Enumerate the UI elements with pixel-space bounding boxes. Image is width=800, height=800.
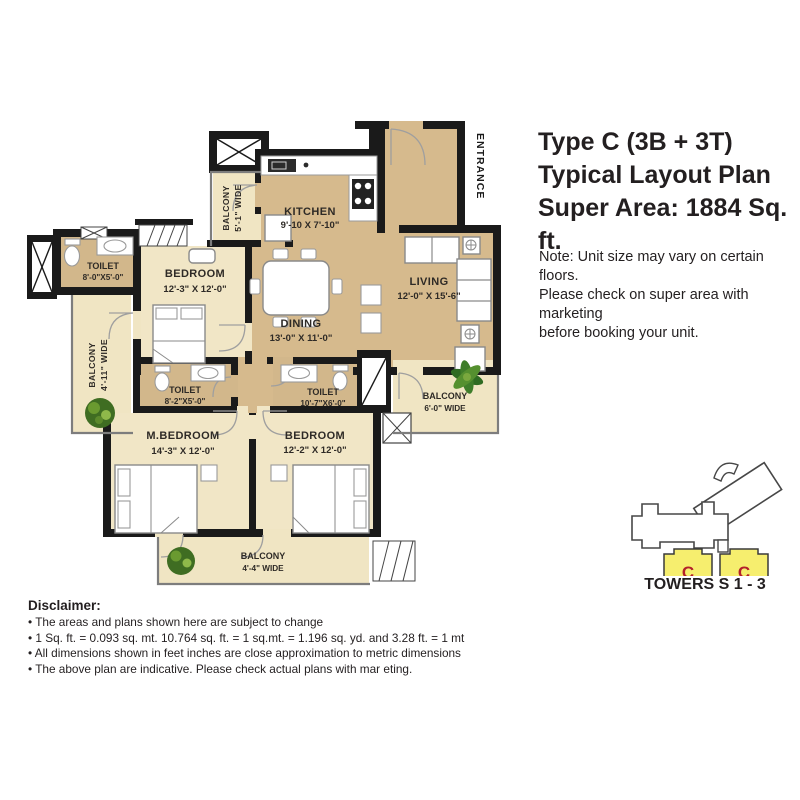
floor-plan: KITCHEN 9'-10 X 7'-10" LIVING 12'-0" X 1… <box>5 115 550 600</box>
balcony-left-label: BALCONY <box>87 342 97 387</box>
tower-outline-hook <box>714 463 738 481</box>
m-bedroom-label: M.BEDROOM <box>146 430 219 442</box>
disclaimer-bullet: • The above plan are indicative. Please … <box>28 662 498 678</box>
living-label: LIVING <box>409 276 448 288</box>
bedroom-bottom-label: BEDROOM <box>285 430 345 442</box>
dining-dims: 13'-0" X 11'-0" <box>270 333 333 344</box>
toilet-right-dims: 10'-7"X6'-0" <box>300 399 345 408</box>
bedroom-top-dims: 12'-3" X 12'-0" <box>163 284 226 295</box>
plant-icon <box>85 398 115 428</box>
sofa-three-seat <box>457 259 491 321</box>
toilet-mid-label: TOILET <box>169 385 201 395</box>
tower-unit-label: C <box>682 563 694 576</box>
disclaimer-bullet: • The areas and plans shown here are sub… <box>28 615 498 631</box>
plant-icon <box>167 547 195 575</box>
plan-title: Type C (3B + 3T) Typical Layout Plan Sup… <box>538 126 798 258</box>
balcony-bottom-dims: 4'-4" WIDE <box>242 564 284 573</box>
balcony-right-dims: 6'-0" WIDE <box>424 404 466 413</box>
balcony-kitchen-label: BALCONY <box>221 185 231 230</box>
tower-location-inset: C C <box>618 448 790 576</box>
bedside-table <box>201 465 217 481</box>
tower-stem <box>718 540 728 552</box>
bedroom-bottom-dims: 12'-2" X 12'-0" <box>283 445 346 456</box>
living-dims: 12'-0" X 15'-6" <box>397 291 460 302</box>
kitchen-dims: 9'-10 X 7'-10" <box>281 220 340 231</box>
balcony-right-label: BALCONY <box>423 391 468 401</box>
balcony-kitchen-dims: 5'-1" WIDE <box>233 184 243 231</box>
disclaimer: Disclaimer: • The areas and plans shown … <box>28 598 498 677</box>
bedside-table <box>271 465 287 481</box>
tower-caption: TOWERS S 1 - 3 <box>612 576 798 594</box>
tower-unit-label: C <box>738 563 750 576</box>
note-line: before booking your unit. <box>539 324 800 343</box>
toilet-left-dims: 8'-0"X5'-0" <box>83 273 124 282</box>
balcony-bottom-label: BALCONY <box>241 551 286 561</box>
dining-table <box>263 261 329 315</box>
bedroom-top-label: BEDROOM <box>165 268 225 280</box>
plan-note: Note: Unit size may vary on certain floo… <box>539 248 800 343</box>
plan-subtitle: Typical Layout Plan <box>538 159 798 192</box>
wc <box>65 239 80 245</box>
disclaimer-bullet: • All dimensions shown in feet inches ar… <box>28 646 498 662</box>
kitchen-label: KITCHEN <box>284 206 336 218</box>
note-line: Please check on super area with marketin… <box>539 286 800 324</box>
m-bedroom-dims: 14'-3" X 12'-0" <box>151 446 214 457</box>
wc <box>155 366 170 372</box>
bedside-table <box>189 249 215 263</box>
note-line: Note: Unit size may vary on certain floo… <box>539 248 800 286</box>
wc <box>333 365 348 371</box>
entrance-label: ENTRANCE <box>474 133 486 199</box>
dining-label: DINING <box>281 318 322 330</box>
disclaimer-heading: Disclaimer: <box>28 598 498 613</box>
tower-outline-main <box>632 502 728 548</box>
plan-type: Type C (3B + 3T) <box>538 126 798 159</box>
toilet-left-label: TOILET <box>87 261 119 271</box>
entrance-hall-floor <box>385 129 457 229</box>
disclaimer-bullet: • 1 Sq. ft. = 0.093 sq. mt. 10.764 sq. f… <box>28 631 498 647</box>
toilet-mid-dims: 8'-2"X5'-0" <box>165 397 206 406</box>
toilet-right-label: TOILET <box>307 387 339 397</box>
kitchen-stove <box>352 179 374 209</box>
balcony-left-dims: 4'-11" WIDE <box>99 339 109 391</box>
